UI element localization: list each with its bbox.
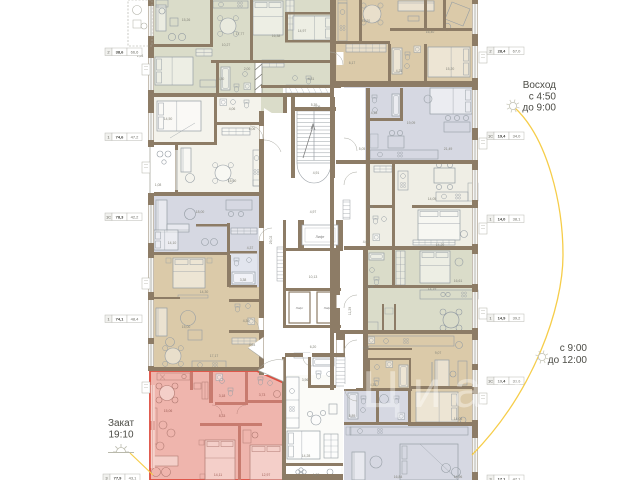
svg-text:10,27: 10,27 <box>222 43 231 47</box>
svg-text:5,28: 5,28 <box>363 346 370 350</box>
svg-text:38,6: 38,6 <box>116 49 125 54</box>
svg-text:3,73: 3,73 <box>259 393 266 397</box>
svg-text:10,13: 10,13 <box>309 275 318 279</box>
svg-text:14,9: 14,9 <box>498 315 507 320</box>
svg-text:14,11: 14,11 <box>214 473 222 477</box>
svg-text:4,30: 4,30 <box>218 77 225 81</box>
svg-text:42,2: 42,2 <box>131 214 140 219</box>
svg-text:29,02: 29,02 <box>269 236 273 245</box>
svg-text:4,30: 4,30 <box>243 319 250 323</box>
svg-text:3,38: 3,38 <box>240 278 247 282</box>
svg-text:4,37: 4,37 <box>247 246 254 250</box>
svg-text:19,4: 19,4 <box>498 133 507 138</box>
svg-text:9,07: 9,07 <box>435 351 442 355</box>
svg-text:19:10: 19:10 <box>108 430 133 441</box>
svg-text:14,97: 14,97 <box>298 29 307 33</box>
svg-text:17,17: 17,17 <box>210 354 219 358</box>
svg-text:8,33: 8,33 <box>219 414 226 418</box>
svg-text:6,17: 6,17 <box>349 61 356 65</box>
svg-text:34,0: 34,0 <box>513 133 522 138</box>
svg-text:4,18: 4,18 <box>371 111 378 115</box>
svg-text:1С: 1С <box>106 214 111 219</box>
svg-text:14,96: 14,96 <box>454 475 463 479</box>
svg-text:Лифт: Лифт <box>316 235 325 239</box>
svg-text:до 9:00: до 9:00 <box>522 103 556 114</box>
svg-text:4,97: 4,97 <box>310 210 317 214</box>
svg-text:16,84: 16,84 <box>394 475 403 479</box>
svg-text:66,6: 66,6 <box>131 49 140 54</box>
svg-text:4,31: 4,31 <box>308 77 315 81</box>
svg-text:14,28: 14,28 <box>302 454 311 458</box>
svg-text:5,05: 5,05 <box>367 285 374 289</box>
svg-text:14,0: 14,0 <box>498 216 507 221</box>
svg-text:14,20: 14,20 <box>436 243 445 247</box>
svg-text:47,2: 47,2 <box>131 134 140 139</box>
svg-text:4,06: 4,06 <box>229 107 236 111</box>
svg-text:с 4:50: с 4:50 <box>529 92 557 103</box>
svg-text:15,00: 15,00 <box>228 179 237 183</box>
svg-text:Закат: Закат <box>108 418 135 429</box>
svg-text:15,06: 15,06 <box>164 409 173 413</box>
svg-text:1С: 1С <box>488 133 493 138</box>
svg-text:6,20: 6,20 <box>310 345 317 349</box>
svg-text:12,97: 12,97 <box>262 473 271 477</box>
svg-text:77,9: 77,9 <box>114 475 123 480</box>
svg-text:5,39: 5,39 <box>311 103 318 107</box>
svg-text:3,18: 3,18 <box>219 394 226 398</box>
svg-text:17,1: 17,1 <box>498 476 507 480</box>
svg-text:16,38: 16,38 <box>272 34 281 38</box>
svg-text:15,26: 15,26 <box>182 18 191 22</box>
svg-text:14,30: 14,30 <box>200 290 209 294</box>
svg-text:4,91: 4,91 <box>313 171 320 175</box>
svg-text:74,1: 74,1 <box>116 316 125 321</box>
svg-text:14,50: 14,50 <box>164 117 173 121</box>
svg-text:2,00: 2,00 <box>244 67 251 71</box>
svg-text:16,40: 16,40 <box>426 30 435 34</box>
svg-text:3,96: 3,96 <box>302 378 309 382</box>
svg-text:до 12:00: до 12:00 <box>548 355 588 366</box>
svg-text:14,19: 14,19 <box>428 287 437 291</box>
svg-text:74,6: 74,6 <box>116 134 125 139</box>
svg-text:4,64: 4,64 <box>249 343 256 347</box>
svg-text:11,20: 11,20 <box>362 19 370 23</box>
svg-text:15,00: 15,00 <box>182 325 191 329</box>
svg-text:4,03: 4,03 <box>363 240 370 244</box>
svg-text:7,85: 7,85 <box>367 205 374 209</box>
svg-text:21,49: 21,49 <box>444 147 453 151</box>
svg-text:19,09: 19,09 <box>407 121 416 125</box>
svg-text:8,06: 8,06 <box>249 127 256 131</box>
svg-text:с 9:00: с 9:00 <box>560 343 588 354</box>
svg-text:18,00: 18,00 <box>196 210 205 214</box>
svg-text:14,05: 14,05 <box>428 197 437 201</box>
svg-text:Восход: Восход <box>523 80 556 91</box>
svg-text:78,3: 78,3 <box>116 214 125 219</box>
svg-text:43,1: 43,1 <box>129 475 138 480</box>
svg-text:1,87: 1,87 <box>313 473 320 477</box>
svg-text:28,4: 28,4 <box>498 48 507 53</box>
svg-text:Лифт: Лифт <box>296 306 304 310</box>
svg-text:38,1: 38,1 <box>513 216 522 221</box>
svg-text:5,89: 5,89 <box>349 414 356 418</box>
svg-text:15,20: 15,20 <box>446 67 455 71</box>
svg-text:16,61: 16,61 <box>454 279 463 283</box>
svg-text:5,05: 5,05 <box>359 147 366 151</box>
svg-text:17,77: 17,77 <box>236 32 245 36</box>
svg-text:67,0: 67,0 <box>513 48 522 53</box>
svg-text:14,10: 14,10 <box>168 241 177 245</box>
svg-text:48,4: 48,4 <box>131 316 140 321</box>
svg-text:47,1: 47,1 <box>513 476 522 480</box>
svg-text:1,08: 1,08 <box>155 183 162 187</box>
svg-text:39,2: 39,2 <box>513 315 522 320</box>
svg-text:4,21: 4,21 <box>396 69 403 73</box>
svg-text:11,29: 11,29 <box>348 307 352 315</box>
